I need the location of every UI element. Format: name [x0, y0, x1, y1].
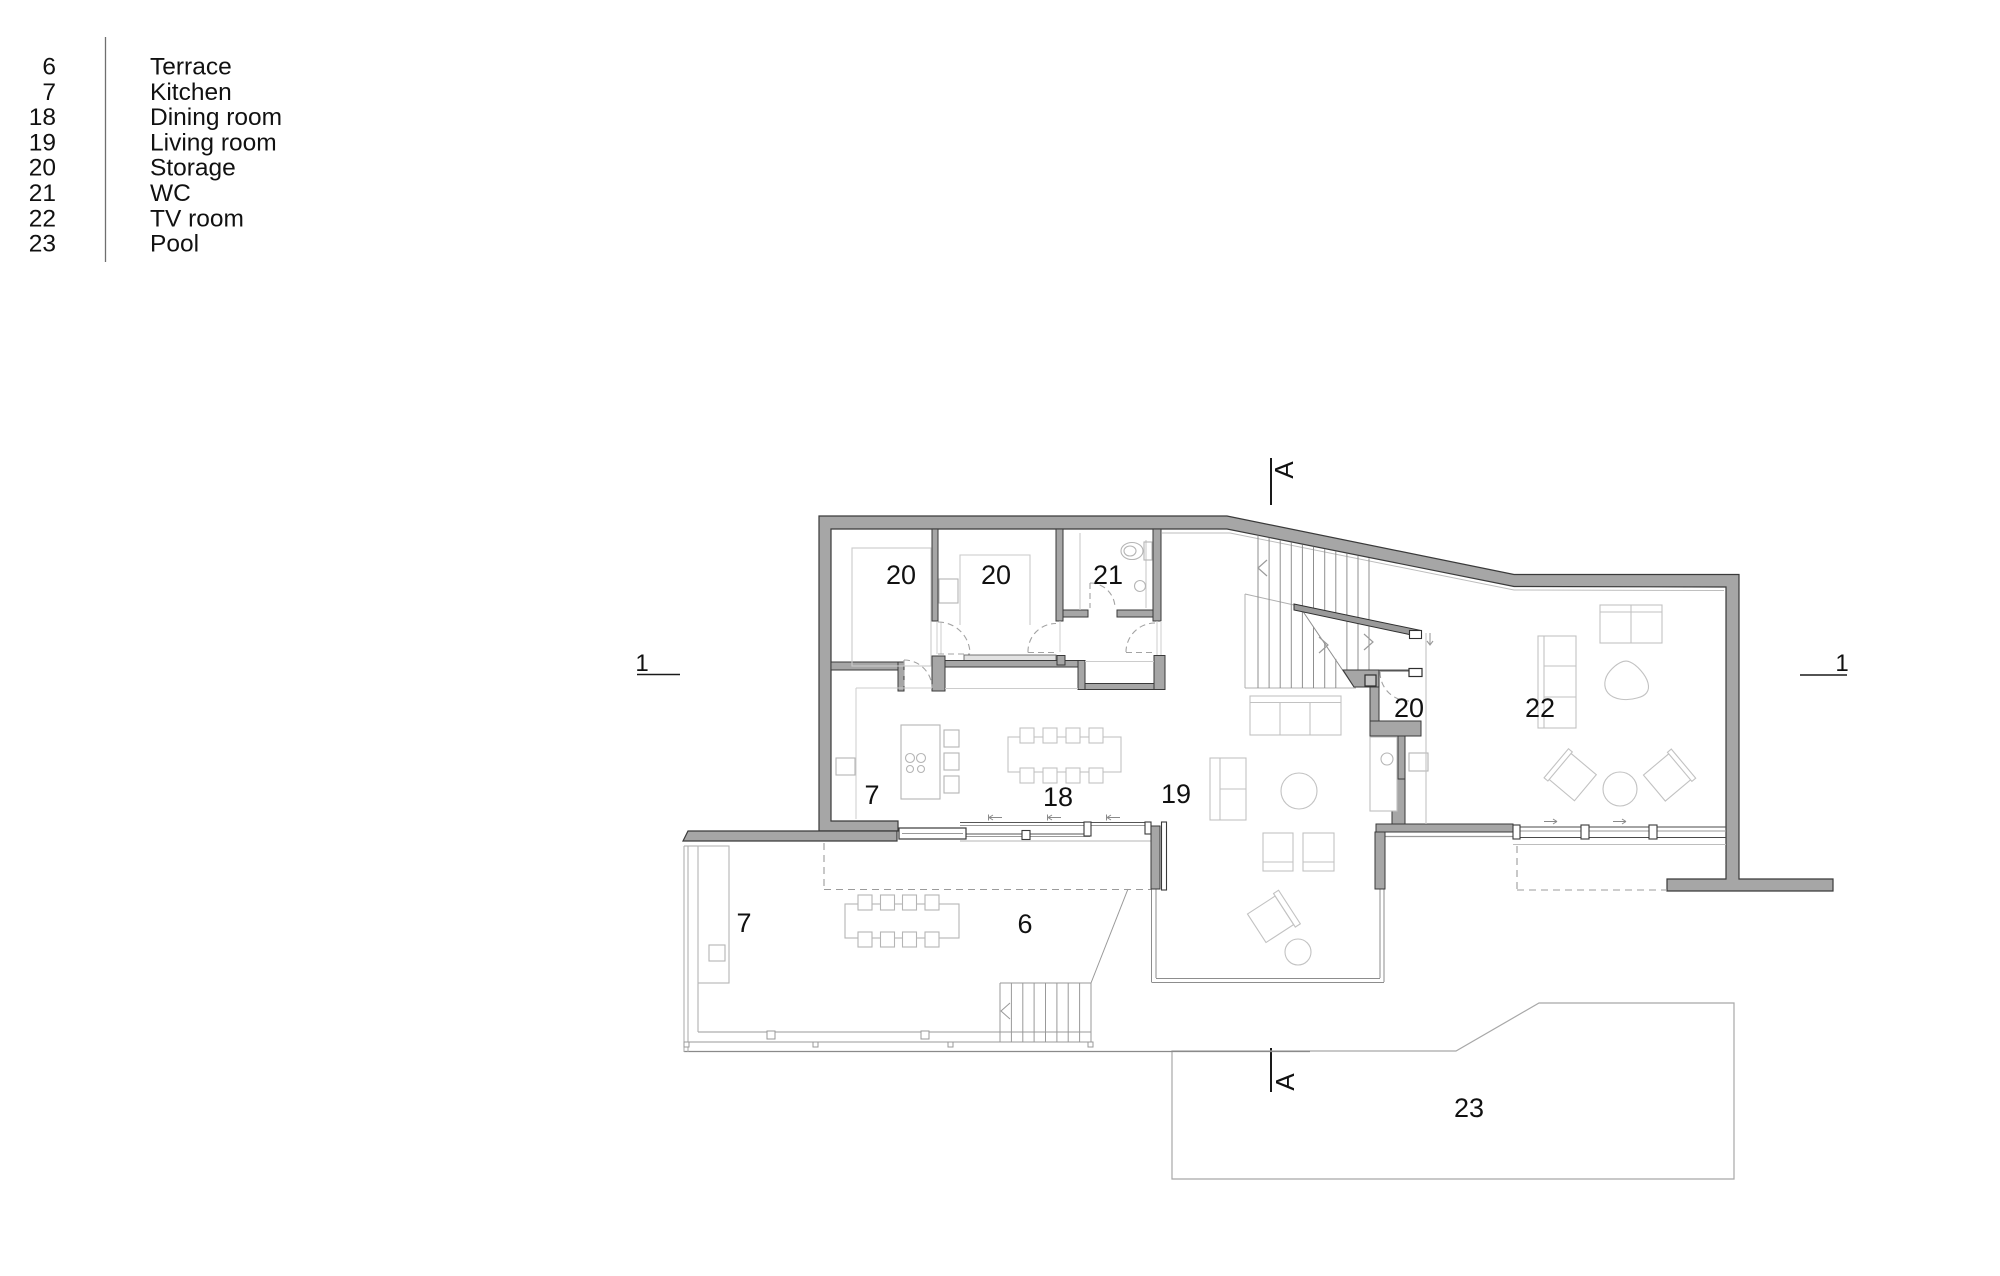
svg-text:7: 7	[864, 780, 879, 810]
svg-text:A: A	[1270, 1073, 1300, 1091]
svg-text:Living room: Living room	[150, 129, 277, 156]
svg-text:1: 1	[635, 650, 648, 677]
svg-text:WC: WC	[150, 180, 191, 207]
svg-text:7: 7	[42, 79, 56, 106]
svg-text:23: 23	[1454, 1093, 1484, 1123]
svg-text:6: 6	[1017, 909, 1032, 939]
svg-text:20: 20	[1394, 693, 1424, 723]
svg-text:TV room: TV room	[150, 205, 244, 232]
svg-text:19: 19	[29, 129, 56, 156]
svg-text:A: A	[1269, 461, 1299, 479]
svg-text:20: 20	[886, 560, 916, 590]
svg-text:23: 23	[29, 231, 56, 258]
svg-text:22: 22	[29, 205, 56, 232]
svg-text:Terrace: Terrace	[150, 54, 232, 81]
svg-text:20: 20	[981, 560, 1011, 590]
svg-text:21: 21	[1093, 560, 1123, 590]
svg-text:20: 20	[29, 155, 56, 182]
svg-text:Dining room: Dining room	[150, 104, 282, 131]
svg-text:1: 1	[1835, 650, 1848, 677]
svg-text:Storage: Storage	[150, 155, 236, 182]
svg-text:6: 6	[42, 54, 56, 81]
svg-text:18: 18	[29, 104, 56, 131]
svg-text:7: 7	[736, 908, 751, 938]
svg-text:18: 18	[1043, 782, 1073, 812]
svg-text:Pool: Pool	[150, 231, 199, 258]
svg-text:22: 22	[1525, 693, 1555, 723]
svg-text:Kitchen: Kitchen	[150, 79, 232, 106]
svg-text:21: 21	[29, 180, 56, 207]
svg-text:19: 19	[1161, 779, 1191, 809]
